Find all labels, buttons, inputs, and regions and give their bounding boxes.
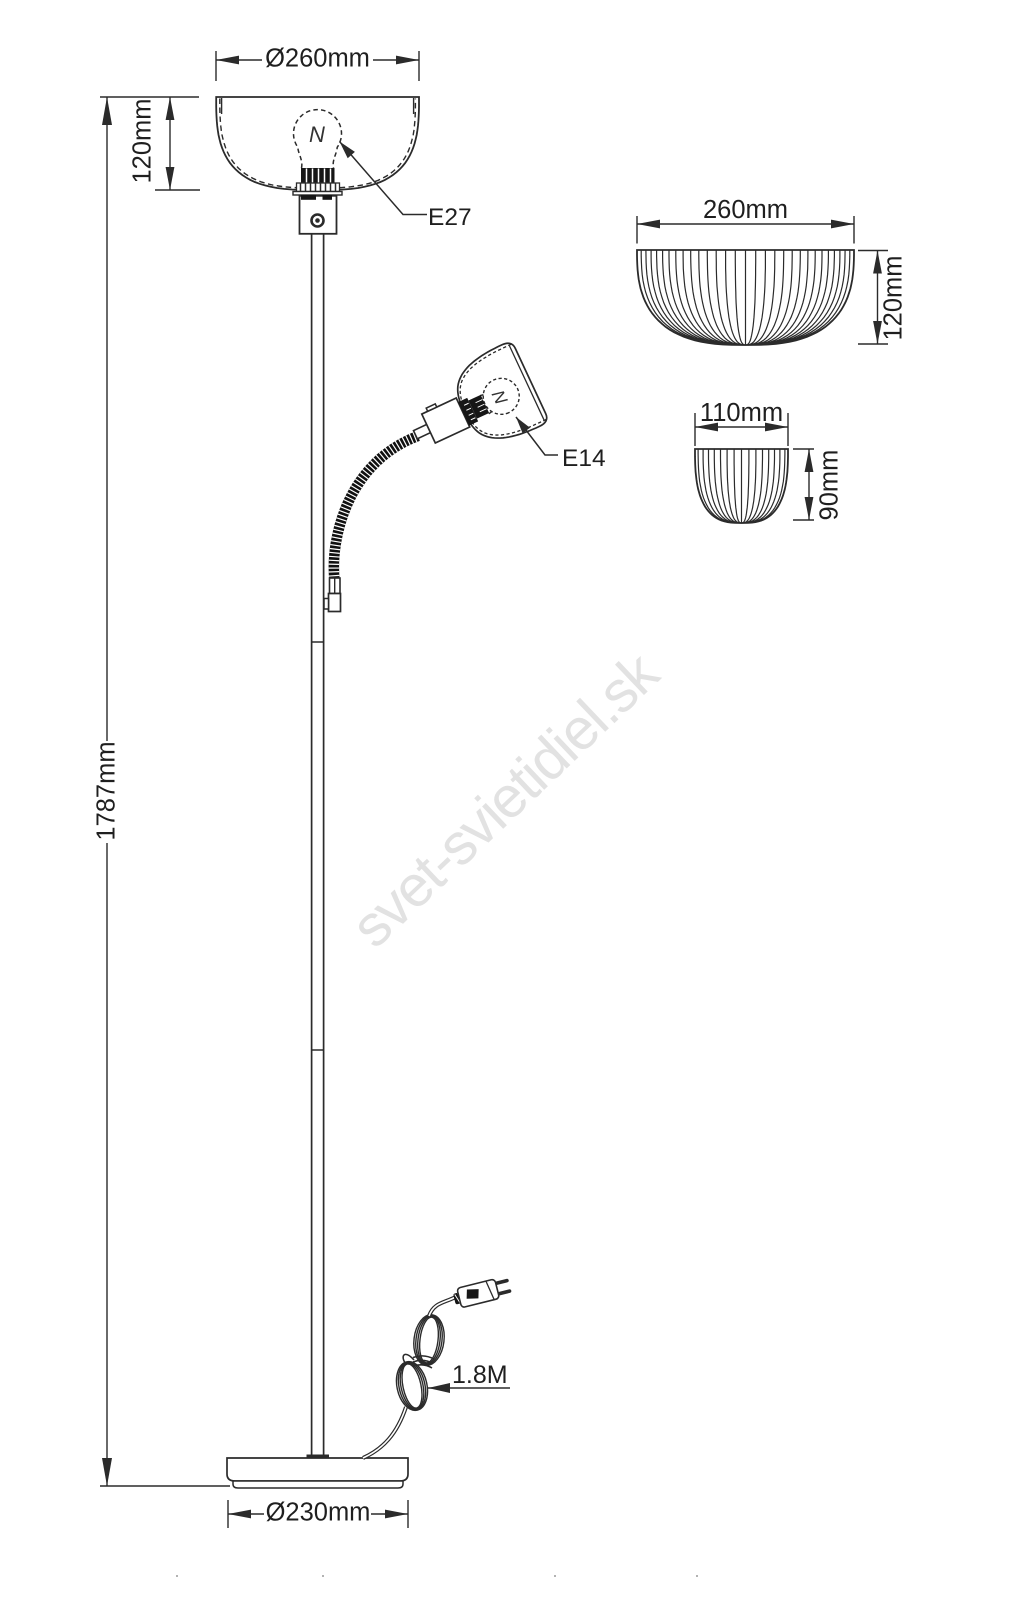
svg-text:120mm: 120mm xyxy=(880,255,908,340)
svg-text:Ø260mm: Ø260mm xyxy=(265,45,370,73)
svg-text:1787mm: 1787mm xyxy=(93,741,121,840)
svg-text:E14: E14 xyxy=(562,445,606,472)
svg-text:E27: E27 xyxy=(428,204,472,231)
svg-text:N: N xyxy=(309,122,325,147)
svg-text:120mm: 120mm xyxy=(129,98,157,183)
svg-text:svet-svietidiel.sk: svet-svietidiel.sk xyxy=(339,639,672,959)
svg-text:110mm: 110mm xyxy=(700,399,783,427)
svg-text:90mm: 90mm xyxy=(816,450,844,521)
svg-text:Ø230mm: Ø230mm xyxy=(266,1499,371,1527)
svg-text:260mm: 260mm xyxy=(703,196,788,224)
svg-text:1.8M: 1.8M xyxy=(452,1361,508,1389)
